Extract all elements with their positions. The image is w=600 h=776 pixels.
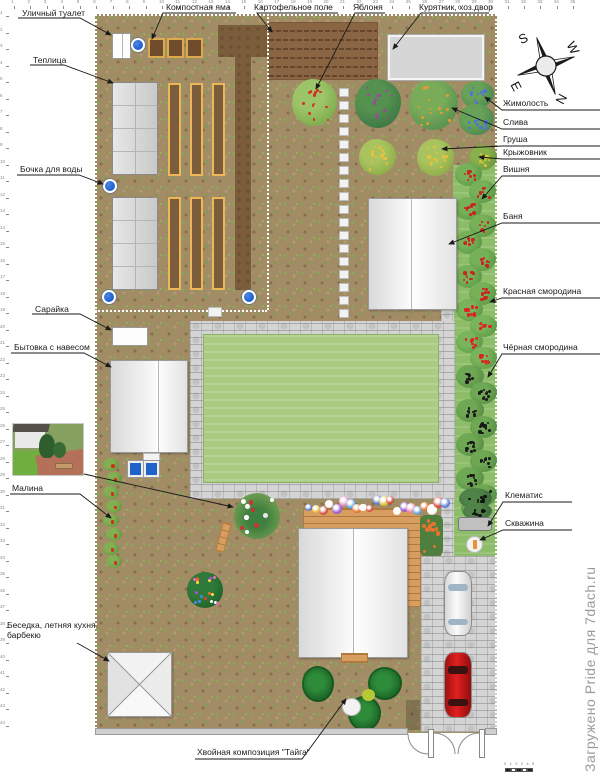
label-greenhouse: Теплица: [33, 56, 66, 66]
berry-dot: [482, 162, 484, 164]
flower-dot: [427, 519, 430, 522]
white-car-windshield: [448, 584, 468, 591]
berry-dot: [472, 445, 475, 448]
label-shed: Сарайка: [35, 305, 69, 315]
berry-dot: [469, 278, 471, 280]
berry-dot: [367, 93, 370, 96]
berry-dot: [469, 213, 472, 216]
flower-dot: [196, 581, 199, 584]
stepping-stone: [339, 192, 349, 201]
stone-circle: [342, 698, 361, 716]
white-car: [444, 571, 472, 636]
berry-dot: [475, 337, 478, 340]
garden-plan-page: 1234567891011121314151617181920212223242…: [0, 0, 600, 776]
berry-dot: [488, 466, 491, 469]
blue-container-1: [128, 461, 143, 477]
orange-flowerbed: [420, 515, 443, 556]
banya-building: [368, 198, 457, 310]
banya-ridge: [411, 199, 412, 309]
berry-dot: [438, 107, 441, 110]
label-compost-pit: Компостная яма: [166, 3, 231, 13]
berry-dot: [488, 196, 491, 199]
berry-dot: [475, 306, 478, 309]
berry-dot: [466, 281, 468, 283]
flowerbed-photo: [12, 423, 84, 476]
flower-dot: [196, 578, 199, 581]
berry-dot: [302, 102, 305, 105]
berry-dot: [479, 327, 482, 330]
berry-dot: [313, 118, 315, 120]
flower-dot: [200, 595, 203, 598]
flower-dot: [422, 524, 426, 528]
red-car-rear-window: [448, 699, 468, 706]
flower-dot: [249, 500, 253, 504]
berry-dot: [468, 127, 471, 130]
berry-dot: [469, 474, 472, 477]
water-barrel: [242, 290, 256, 304]
compass-letter-s: S: [516, 30, 530, 47]
stepping-stone: [339, 205, 349, 214]
berry-dot: [482, 397, 485, 400]
berry-dot: [467, 179, 469, 181]
borehole-cap: [466, 536, 483, 553]
berry-dot: [470, 93, 473, 96]
scale-number: 4: [526, 761, 528, 766]
berry-dot: [478, 391, 481, 394]
berry-dot: [319, 91, 321, 93]
berry-dot: [313, 93, 317, 97]
berry-dot: [421, 116, 424, 119]
scale-bar: 012345: [505, 760, 545, 774]
water-barrel: [131, 38, 145, 52]
berry-dot: [473, 174, 476, 177]
flower-dot: [423, 550, 426, 553]
stepping-stone: [339, 114, 349, 123]
chicken-coop: [388, 35, 484, 80]
berry-dot: [385, 90, 387, 92]
berry-dot: [371, 153, 374, 156]
watermark-text: Загружено Pride для 7dach.ru: [582, 566, 598, 772]
berry-dot: [479, 323, 481, 325]
berry-dot: [488, 390, 491, 393]
berry-dot: [468, 243, 471, 246]
berry-dot: [485, 264, 488, 267]
berry-dot: [477, 118, 480, 121]
label-conifer-composition: Хвойная композиция "Тайга": [197, 748, 310, 758]
stepping-stone: [339, 127, 349, 136]
shed-building: [112, 327, 148, 346]
berry-dot: [488, 261, 490, 263]
berry-dot: [483, 257, 485, 259]
scale-number: 1: [510, 761, 512, 766]
fence-inner-h: [95, 310, 267, 312]
label-honeysuckle: Жимолость: [503, 99, 548, 109]
stepping-stone: [339, 88, 349, 97]
label-apple-tree: Яблоня: [353, 3, 383, 13]
berry-dot: [418, 106, 420, 108]
berry-dot: [373, 101, 377, 105]
berry-dot: [482, 94, 484, 96]
house-roof-right: [353, 529, 407, 657]
berry-dot: [426, 122, 429, 125]
berry-dot: [376, 95, 379, 98]
berry-dot: [481, 221, 483, 223]
berry-dot: [482, 191, 484, 193]
berry-dot: [487, 221, 490, 224]
berry-dot: [446, 108, 449, 111]
berry-dot: [484, 164, 487, 167]
compost-bin: [148, 38, 165, 58]
berry-dot: [465, 449, 468, 452]
label-chicken-coop: Курятник, хоз.двор: [419, 3, 493, 13]
stepping-stone: [339, 101, 349, 110]
potato-field: [268, 22, 378, 80]
red-car-windshield: [448, 666, 468, 674]
berry-dot: [468, 121, 470, 123]
berry-dot: [474, 410, 477, 413]
berry-dot: [430, 163, 433, 166]
berry-dot: [471, 339, 474, 342]
cabin-ridge: [158, 361, 159, 452]
berry-dot: [426, 86, 429, 89]
berry-dot: [428, 99, 430, 101]
berry-dot: [473, 312, 476, 315]
berry-dot: [468, 114, 470, 116]
scale-number: 0: [504, 761, 506, 766]
cabin-step: [143, 453, 160, 461]
fence-top: [95, 14, 497, 16]
cabin-roof-right: [156, 361, 187, 452]
berry-dot: [463, 271, 467, 275]
cabin-building: [110, 360, 188, 453]
red-car: [444, 652, 472, 718]
flower-dot: [263, 513, 268, 518]
garden-bed: [190, 83, 203, 176]
photo-bench: [55, 463, 73, 469]
berry-dot: [467, 410, 470, 413]
flower-dot: [435, 527, 438, 530]
flower-dot: [270, 498, 274, 502]
flower-dot: [244, 515, 249, 520]
berry-dot: [469, 170, 472, 173]
garden-bed: [212, 197, 225, 290]
flower: [440, 498, 450, 508]
berry-dot: [483, 424, 486, 427]
blue-container-2: [144, 461, 159, 477]
compass-letter-e: E: [507, 79, 524, 94]
berry-dot: [484, 225, 486, 227]
flower-dot: [211, 593, 214, 596]
berry-dot: [488, 457, 491, 460]
berry-dot: [469, 175, 472, 178]
flower-dot: [251, 508, 255, 512]
berry-dot: [475, 513, 478, 516]
berry-dot: [391, 94, 393, 96]
label-black-currant: Чёрная смородина: [503, 343, 578, 353]
stepping-stone: [339, 244, 349, 253]
yellow-shrub: [362, 689, 375, 701]
bottom-fence-stub: [485, 728, 497, 735]
flower-dot: [213, 576, 216, 579]
conifer-tree: [302, 666, 334, 702]
greenhouse-1: [112, 82, 158, 175]
berry-dot: [483, 296, 486, 299]
photo-conifer-2: [53, 442, 66, 458]
borehole-pump: [473, 540, 477, 549]
garden-bed: [168, 197, 181, 290]
berry-dot: [471, 305, 474, 308]
berry-dot: [488, 429, 491, 432]
gate-door-left: [428, 729, 434, 758]
berry-dot: [383, 109, 386, 112]
cabin-roof-left: [111, 361, 158, 452]
stepping-stone: [339, 218, 349, 227]
round-flowerbed: [187, 572, 223, 608]
berry-dot: [429, 108, 431, 110]
berry-dot: [479, 425, 482, 428]
berry-dot: [371, 161, 374, 164]
label-gooseberry: Крыжовник: [503, 148, 547, 158]
berry-dot: [472, 513, 474, 515]
stepping-stone: [208, 307, 222, 317]
berry-dot: [487, 360, 489, 362]
garden-bed: [212, 83, 225, 176]
berry-dot: [436, 152, 438, 154]
flower-dot: [194, 601, 197, 604]
berry-dot: [427, 155, 430, 158]
berry-dot: [480, 461, 482, 463]
house-building: [298, 528, 408, 658]
berry-dot: [479, 224, 481, 226]
berry-dot: [469, 482, 472, 485]
flower-dot: [216, 602, 219, 605]
stepping-stone: [339, 166, 349, 175]
water-barrel: [102, 290, 116, 304]
flower-dot: [245, 530, 249, 534]
berry-dot: [482, 498, 485, 501]
berry-dot: [484, 158, 487, 161]
berry-dot: [487, 291, 491, 295]
stepping-stone: [339, 231, 349, 240]
berry-dot: [383, 157, 386, 160]
berry-dot: [466, 276, 468, 278]
berry-dot: [473, 442, 476, 445]
berry-dot: [423, 86, 426, 89]
berry-dot: [433, 146, 435, 148]
flower-dot: [195, 591, 198, 594]
berry-dot: [487, 422, 489, 424]
compass-letter-w: W: [563, 39, 582, 58]
berry-dot: [376, 116, 379, 119]
scale-number: 2: [515, 761, 517, 766]
berry-dot: [483, 510, 485, 512]
berry-dot: [485, 127, 488, 130]
berry-dot: [467, 442, 469, 444]
berry-dot: [484, 187, 486, 189]
berry-dot: [471, 377, 474, 380]
berry-dot: [111, 548, 114, 551]
label-potato-field: Картофельное поле: [254, 3, 333, 13]
corner-flowerbed: [234, 493, 280, 539]
berry-dot: [477, 195, 479, 197]
berry-dot: [465, 380, 469, 384]
berry-dot: [426, 147, 429, 150]
berry-dot: [440, 166, 442, 168]
berry-dot: [468, 498, 471, 501]
berry-dot: [474, 344, 477, 347]
label-clematis: Клематис: [505, 491, 543, 501]
berry-dot: [465, 338, 468, 341]
berry-dot: [474, 509, 476, 511]
clematis-bench: [458, 517, 492, 531]
water-barrel: [103, 179, 117, 193]
stepping-stone: [339, 179, 349, 188]
berry-dot: [386, 117, 388, 119]
berry-dot: [444, 159, 447, 162]
berry-dot: [308, 112, 311, 115]
berry-dot: [481, 261, 484, 264]
flower-dot: [431, 522, 436, 527]
label-cherry: Вишня: [503, 165, 530, 175]
label-cabin: Бытовка с навесом: [14, 343, 90, 353]
berry-dot: [467, 373, 470, 376]
berry-dot: [114, 562, 117, 565]
house-steps: [341, 653, 368, 663]
label-pear: Груша: [503, 135, 528, 145]
photo-roof: [12, 424, 50, 432]
stepping-stone: [339, 309, 349, 318]
flower-dot: [209, 577, 212, 580]
compost-bin: [186, 38, 203, 58]
stepping-stone: [339, 296, 349, 305]
berry-dot: [325, 106, 327, 108]
label-gazebo: Беседка, летняя кухня, барбекю: [7, 621, 99, 640]
berry-dot: [485, 398, 488, 401]
white-car-rear-window: [448, 619, 468, 625]
berry-dot: [477, 93, 479, 95]
garden-bed: [168, 83, 181, 176]
stepping-stone: [339, 257, 349, 266]
fence-inner-v: [267, 14, 269, 310]
berry-dot: [310, 90, 313, 93]
lawn: [203, 334, 439, 483]
gate-door-right: [479, 729, 485, 758]
house-roof-left: [299, 529, 353, 657]
berry-dot: [374, 146, 377, 149]
berry-dot: [446, 94, 449, 97]
gazebo-building: [107, 652, 172, 717]
berry-dot: [420, 124, 423, 127]
stepping-stone: [339, 283, 349, 292]
berry-dot: [440, 112, 442, 114]
berry-dot: [435, 159, 438, 162]
stepping-stone: [339, 140, 349, 149]
berry-dot: [111, 493, 114, 496]
label-plum: Слива: [503, 118, 528, 128]
label-outdoor-toilet: Уличный туалет: [22, 9, 85, 19]
outdoor-toilet: [112, 33, 131, 59]
compass-letter-n: N: [553, 91, 571, 106]
house-ridge: [353, 529, 354, 657]
berry-dot: [111, 520, 114, 523]
berry-dot: [464, 173, 466, 175]
flower-dot: [198, 600, 201, 603]
berry-dot: [386, 162, 389, 165]
label-raspberry: Малина: [12, 484, 43, 494]
scale-number: 5: [532, 761, 534, 766]
berry-dot: [467, 483, 469, 485]
berry-dot: [472, 242, 474, 244]
berry-dot: [481, 432, 484, 435]
berry-dot: [483, 461, 485, 463]
berry-dot: [448, 119, 452, 123]
berry-dot: [380, 154, 383, 157]
fence-right: [495, 14, 497, 733]
scale-segment: [527, 768, 533, 772]
label-water-barrel: Бочка для воды: [20, 165, 82, 175]
flower-dot: [254, 523, 259, 528]
stepping-stone: [339, 153, 349, 162]
garden-bed: [190, 197, 203, 290]
berry-dot: [463, 279, 465, 281]
berry-dot: [483, 89, 486, 92]
berry-dot: [487, 462, 490, 465]
label-red-currant: Красная смородина: [503, 287, 581, 297]
berry-dot: [486, 355, 488, 357]
berry-dot: [488, 159, 490, 161]
compost-bin: [167, 38, 184, 58]
berry-dot: [481, 155, 483, 157]
flower: [366, 505, 373, 512]
tilled-strip: [235, 25, 251, 290]
berry-dot: [479, 126, 483, 130]
berry-dot: [481, 292, 484, 295]
berry-dot: [114, 479, 117, 482]
flower-dot: [429, 527, 433, 531]
berry-dot: [471, 238, 474, 241]
hedge-strip: [406, 700, 420, 730]
toilet-door-split: [122, 34, 123, 58]
berry-dot: [472, 87, 474, 89]
berry-dot: [366, 87, 369, 90]
berry-dot: [485, 427, 487, 429]
banya-roof-right: [410, 199, 456, 309]
label-banya: Баня: [503, 212, 523, 222]
scale-number: 3: [521, 761, 523, 766]
label-borehole: Скважина: [505, 519, 544, 529]
flower-dot: [210, 600, 213, 603]
flower-dot: [433, 545, 436, 548]
berry-dot: [474, 479, 477, 482]
berry-dot: [466, 208, 468, 210]
berry-dot: [445, 155, 448, 158]
berry-dot: [484, 291, 486, 293]
berry-dot: [375, 156, 377, 158]
berry-dot: [484, 120, 487, 123]
berry-dot: [369, 168, 372, 171]
stepping-stone: [339, 270, 349, 279]
berry-dot: [466, 308, 469, 311]
flower-dot: [204, 597, 207, 600]
flower-dot: [240, 526, 244, 530]
berry-dot: [430, 112, 432, 114]
banya-roof-left: [369, 199, 411, 309]
bottom-fence: [95, 728, 408, 735]
berry-dot: [488, 325, 491, 328]
greenhouse-2: [112, 197, 158, 290]
